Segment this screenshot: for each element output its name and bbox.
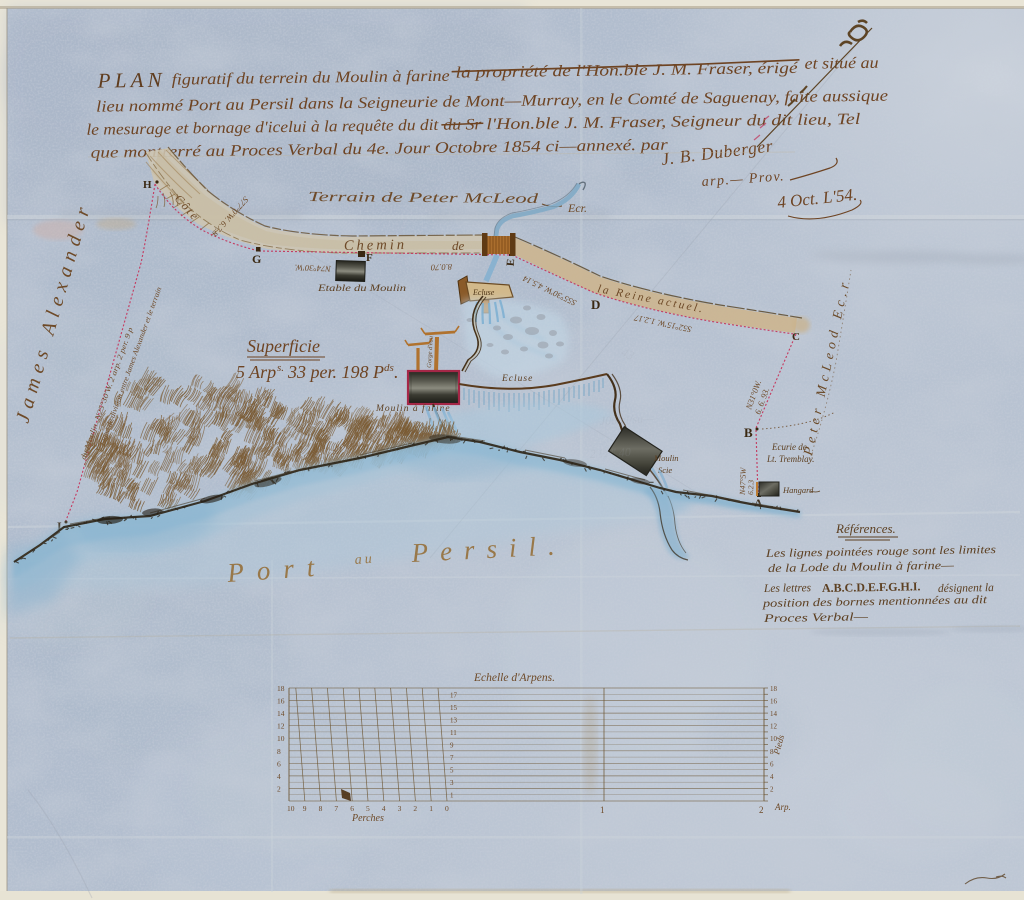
svg-text:G: G: [252, 252, 261, 266]
svg-text:17: 17: [450, 691, 458, 699]
svg-text:33 per. 198 P: 33 per. 198 P: [287, 362, 384, 382]
svg-text:4: 4: [277, 772, 281, 781]
svg-text:16: 16: [770, 698, 778, 706]
svg-text:Arp.: Arp.: [774, 802, 791, 812]
svg-text:5: 5: [450, 767, 454, 775]
svg-text:Moulin: Moulin: [653, 453, 679, 463]
svg-text:18: 18: [277, 684, 285, 693]
svg-text:7: 7: [334, 804, 338, 813]
svg-text:14: 14: [770, 710, 778, 718]
svg-text:12: 12: [277, 722, 285, 731]
svg-text:Echelle d'Arpens.: Echelle d'Arpens.: [473, 672, 555, 684]
svg-text:7: 7: [450, 754, 454, 762]
svg-text:H: H: [143, 179, 152, 191]
svg-text:11: 11: [450, 729, 457, 737]
svg-text:16: 16: [277, 697, 285, 706]
svg-text:Perches: Perches: [351, 813, 384, 824]
svg-text:9: 9: [303, 804, 307, 813]
svg-text:Ecluse: Ecluse: [472, 288, 495, 297]
svg-text:.: .: [394, 362, 399, 382]
svg-text:4: 4: [382, 804, 386, 813]
svg-text:1: 1: [600, 805, 605, 815]
svg-text:3: 3: [450, 779, 454, 787]
svg-text:désignent la: désignent la: [938, 582, 994, 595]
svg-text:2: 2: [277, 784, 281, 793]
svg-text:Moulin à farine: Moulin à farine: [375, 403, 451, 414]
svg-text:8.0.70: 8.0.70: [430, 262, 452, 273]
svg-text:0: 0: [445, 804, 449, 813]
svg-text:E: E: [505, 258, 518, 266]
svg-text:1: 1: [429, 804, 433, 813]
svg-text:Chemin: Chemin: [344, 237, 407, 254]
svg-text:B: B: [744, 425, 753, 440]
svg-text:6.2.3: 6.2.3: [746, 480, 756, 496]
svg-text:2: 2: [759, 805, 764, 815]
svg-text:13: 13: [450, 716, 458, 724]
svg-text:6: 6: [770, 760, 774, 768]
svg-text:Les lettres: Les lettres: [763, 582, 812, 595]
svg-text:8: 8: [277, 747, 281, 756]
svg-text:ds: ds: [384, 362, 394, 374]
svg-text:Etable du Moulin: Etable du Moulin: [317, 284, 407, 294]
svg-text:12: 12: [770, 723, 778, 731]
svg-text:8: 8: [319, 804, 323, 813]
svg-text:Références.: Références.: [835, 521, 896, 536]
svg-text:5: 5: [366, 804, 370, 813]
svg-text:6: 6: [350, 804, 354, 813]
svg-text:J06/el/su—: J06/el/su—: [599, 411, 654, 428]
svg-text:1: 1: [450, 792, 454, 800]
svg-text:D: D: [591, 297, 600, 312]
svg-text:18: 18: [770, 685, 778, 693]
svg-text:Terrain de Peter McLeod: Terrain de Peter McLeod: [308, 190, 540, 207]
svg-text:Superficie: Superficie: [247, 336, 320, 356]
svg-text:Ecr.: Ecr.: [567, 201, 587, 215]
svg-text:C: C: [792, 331, 800, 343]
svg-text:Ecluse: Ecluse: [501, 374, 533, 384]
svg-text:14: 14: [277, 709, 285, 718]
svg-text:F: F: [366, 252, 373, 264]
svg-text:2: 2: [413, 804, 417, 813]
svg-text:6: 6: [277, 759, 281, 768]
svg-text:3: 3: [398, 804, 402, 813]
svg-text:4: 4: [770, 773, 774, 781]
svg-text:et situé au: et situé au: [804, 55, 878, 73]
svg-text:10: 10: [287, 804, 295, 813]
svg-text:10: 10: [277, 734, 285, 743]
svg-text:A.B.C.D.E.F.G.H.I.: A.B.C.D.E.F.G.H.I.: [822, 579, 921, 595]
svg-text:de: de: [452, 238, 465, 253]
svg-text:2: 2: [770, 785, 774, 793]
svg-text:au: au: [354, 552, 375, 568]
svg-text:s.: s.: [277, 362, 284, 374]
svg-text:PLAN: PLAN: [97, 68, 164, 93]
svg-text:N74°30'W.: N74°30'W.: [294, 263, 332, 274]
svg-text:15: 15: [450, 704, 458, 712]
svg-text:Hangard: Hangard: [782, 485, 814, 495]
svg-text:9: 9: [450, 742, 454, 750]
svg-text:Proces Verbal—: Proces Verbal—: [762, 611, 869, 625]
svg-text:2 ½ ″ 40: 2 ½ ″ 40: [589, 445, 631, 461]
svg-text:5 Arp: 5 Arp: [236, 362, 276, 382]
